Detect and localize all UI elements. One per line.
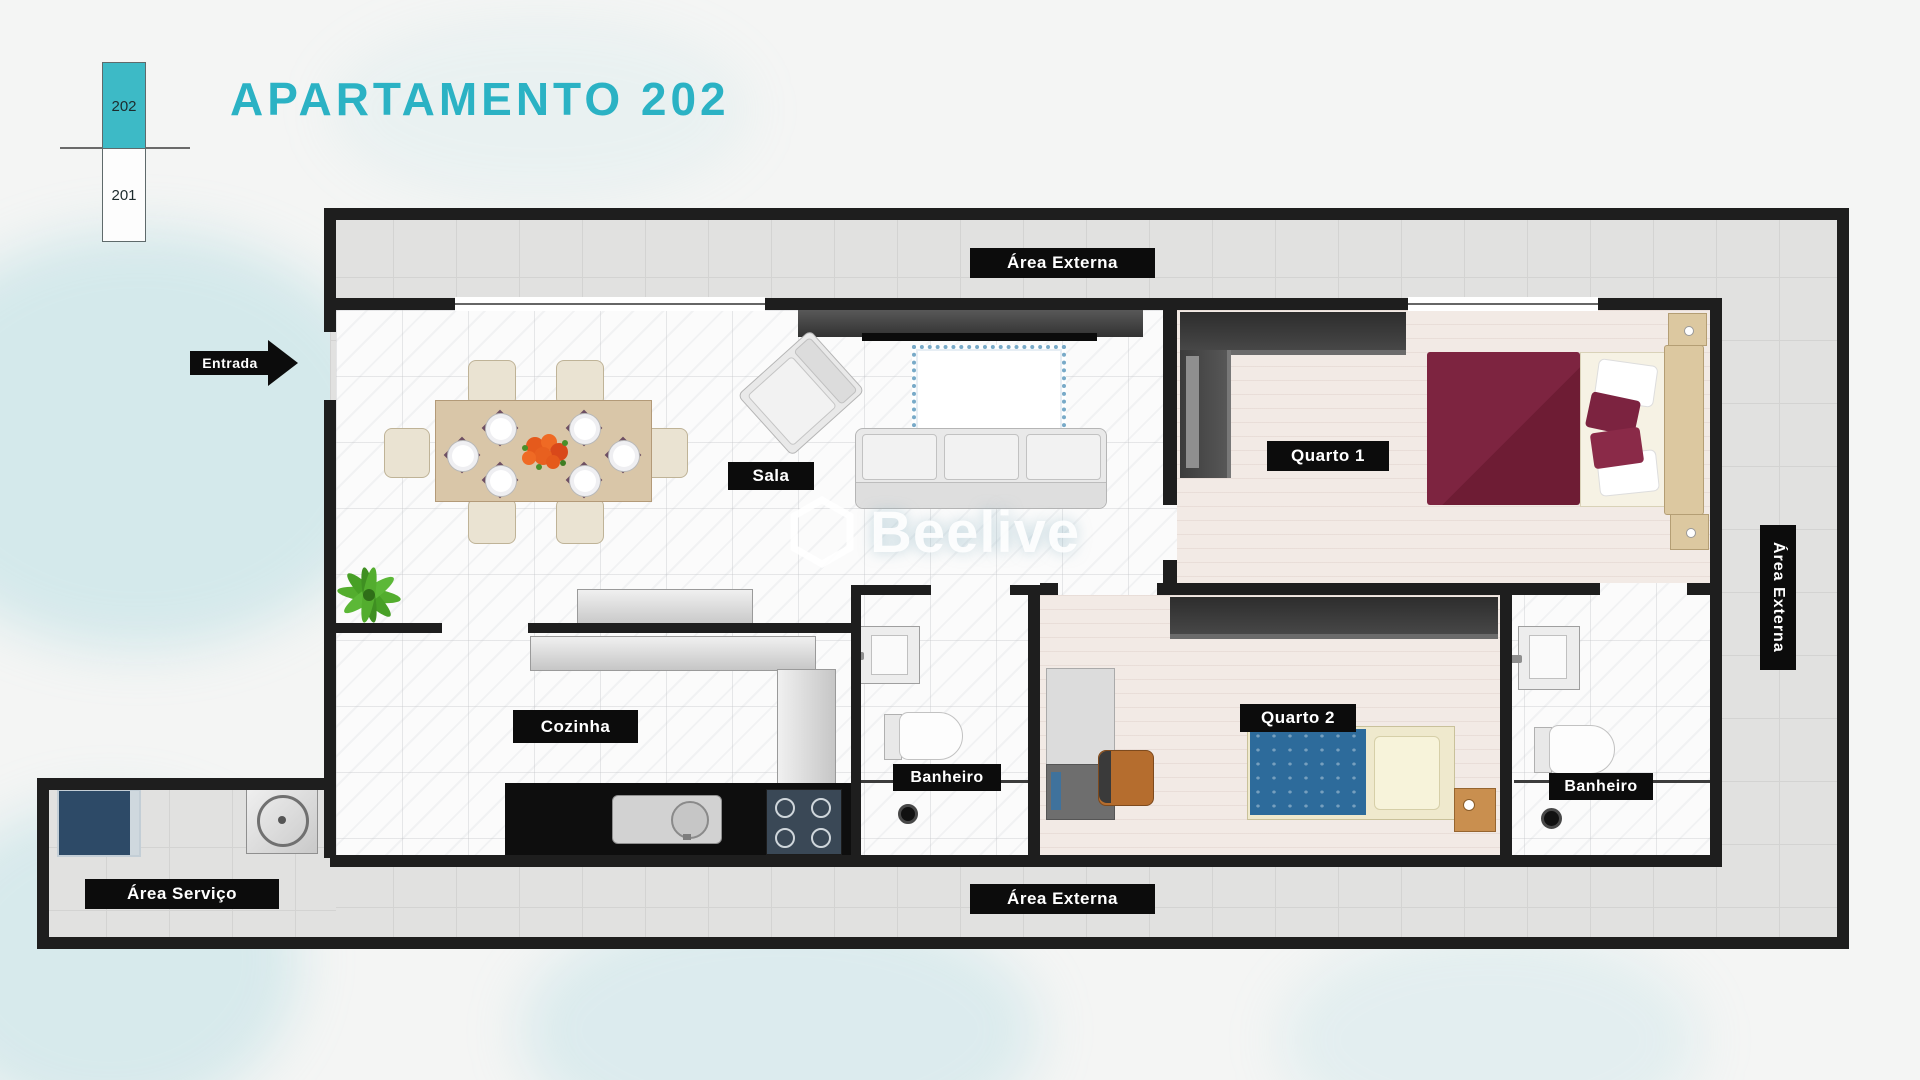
- nightstand-quarto2: [1454, 788, 1496, 832]
- wall: [330, 855, 1722, 867]
- bathroom-sink: [1518, 626, 1580, 690]
- monitor: [1051, 772, 1061, 810]
- kitchen-counter: [530, 636, 816, 671]
- wardrobe-door: [1186, 356, 1199, 468]
- window-pane: [455, 303, 765, 305]
- label-area-servico: Área Serviço: [85, 879, 279, 909]
- wall: [1028, 585, 1040, 855]
- wall: [1500, 595, 1512, 855]
- wall: [1157, 583, 1600, 595]
- wall: [1598, 298, 1722, 310]
- wall: [1040, 583, 1058, 595]
- wall: [37, 778, 49, 949]
- headboard: [1664, 345, 1704, 515]
- bathroom-sink: [860, 626, 920, 684]
- wall: [37, 937, 337, 949]
- lamp: [1684, 326, 1694, 336]
- beelive-logo-icon: [790, 496, 854, 568]
- sink-faucet: [683, 834, 691, 840]
- sideboard: [577, 589, 753, 627]
- legend-unit-202-label: 202: [111, 98, 136, 115]
- legend-unit-201-label: 201: [111, 187, 136, 204]
- label-area-externa-top: Área Externa: [970, 248, 1155, 278]
- nightstand: [1668, 313, 1707, 346]
- wall: [336, 298, 455, 310]
- bed-quarto2-blanket: [1250, 729, 1366, 815]
- burner: [775, 828, 795, 848]
- label-quarto2: Quarto 2: [1240, 704, 1356, 732]
- flower-centerpiece: [515, 428, 577, 474]
- watermark: Beelive: [790, 496, 1080, 568]
- window-pane: [1408, 303, 1598, 305]
- wall: [1687, 583, 1722, 595]
- sink-basin: [871, 635, 908, 675]
- laundry-tank: [57, 789, 141, 857]
- bed-quarto1-blanket: [1427, 352, 1580, 505]
- floor-plan-page: 202 201 APARTAMENTO 202: [0, 0, 1920, 1080]
- wall: [37, 778, 330, 790]
- label-entrada: Entrada: [190, 351, 270, 375]
- dining-chair: [556, 498, 604, 544]
- window: [1408, 297, 1598, 311]
- label-banheiro2: Banheiro: [1549, 773, 1653, 800]
- wall: [851, 585, 931, 595]
- washing-machine: [246, 786, 318, 854]
- wall: [1163, 310, 1177, 505]
- watermark-text: Beelive: [870, 499, 1080, 566]
- washer-dot: [278, 816, 286, 824]
- toilet: [1549, 725, 1615, 774]
- label-area-externa-right: Área Externa: [1760, 525, 1796, 670]
- desk-chair: [1098, 750, 1154, 806]
- decor-item: [1463, 799, 1475, 811]
- plant: [330, 560, 408, 630]
- kitchen-counter: [777, 669, 836, 787]
- legend-unit-201: 201: [102, 148, 146, 242]
- plate: [485, 413, 517, 445]
- sofa-cushion: [1026, 434, 1101, 480]
- dining-chair: [468, 498, 516, 544]
- wall: [324, 208, 336, 332]
- wall: [336, 623, 442, 633]
- wardrobe-quarto2: [1170, 597, 1498, 639]
- label-area-externa-bottom: Área Externa: [970, 884, 1155, 914]
- label-quarto1: Quarto 1: [1267, 441, 1389, 471]
- page-title: APARTAMENTO 202: [230, 72, 730, 126]
- shower-drain: [1541, 808, 1562, 829]
- shower-drain: [898, 804, 918, 824]
- plate: [485, 465, 517, 497]
- kitchen-sink: [612, 795, 722, 844]
- legend-unit-202: 202: [102, 62, 146, 150]
- wall: [528, 623, 851, 633]
- wall: [851, 595, 861, 855]
- sofa-cushion: [944, 434, 1019, 480]
- tank-ledge: [130, 791, 139, 855]
- rug: [912, 345, 1066, 435]
- dining-chair: [384, 428, 430, 478]
- tv: [862, 333, 1097, 341]
- wall: [1837, 208, 1849, 949]
- burner: [775, 798, 795, 818]
- sofa-cushion: [862, 434, 937, 480]
- watercolor-splash: [1280, 930, 1700, 1080]
- window: [455, 297, 765, 311]
- entrance-arrow-icon: [268, 340, 298, 386]
- cooktop: [766, 789, 842, 855]
- chair-back: [1099, 751, 1111, 803]
- lamp: [1686, 528, 1696, 538]
- burner: [811, 828, 831, 848]
- label-banheiro1: Banheiro: [893, 764, 1001, 791]
- wardrobe-quarto1: [1180, 312, 1406, 355]
- plate: [447, 440, 479, 472]
- label-sala: Sala: [728, 462, 814, 490]
- bed-quarto2-pillow: [1374, 736, 1440, 810]
- burner: [811, 798, 831, 818]
- wardrobe-quarto1: [1180, 350, 1231, 478]
- sink-basin: [1529, 635, 1567, 679]
- accent-pillow: [1590, 427, 1645, 470]
- plate: [608, 440, 640, 472]
- toilet: [899, 712, 963, 760]
- nightstand: [1670, 514, 1709, 550]
- wall: [1163, 560, 1177, 583]
- label-cozinha: Cozinha: [513, 710, 638, 743]
- wall: [324, 208, 1849, 220]
- wall: [324, 937, 1849, 949]
- wall: [765, 298, 1408, 310]
